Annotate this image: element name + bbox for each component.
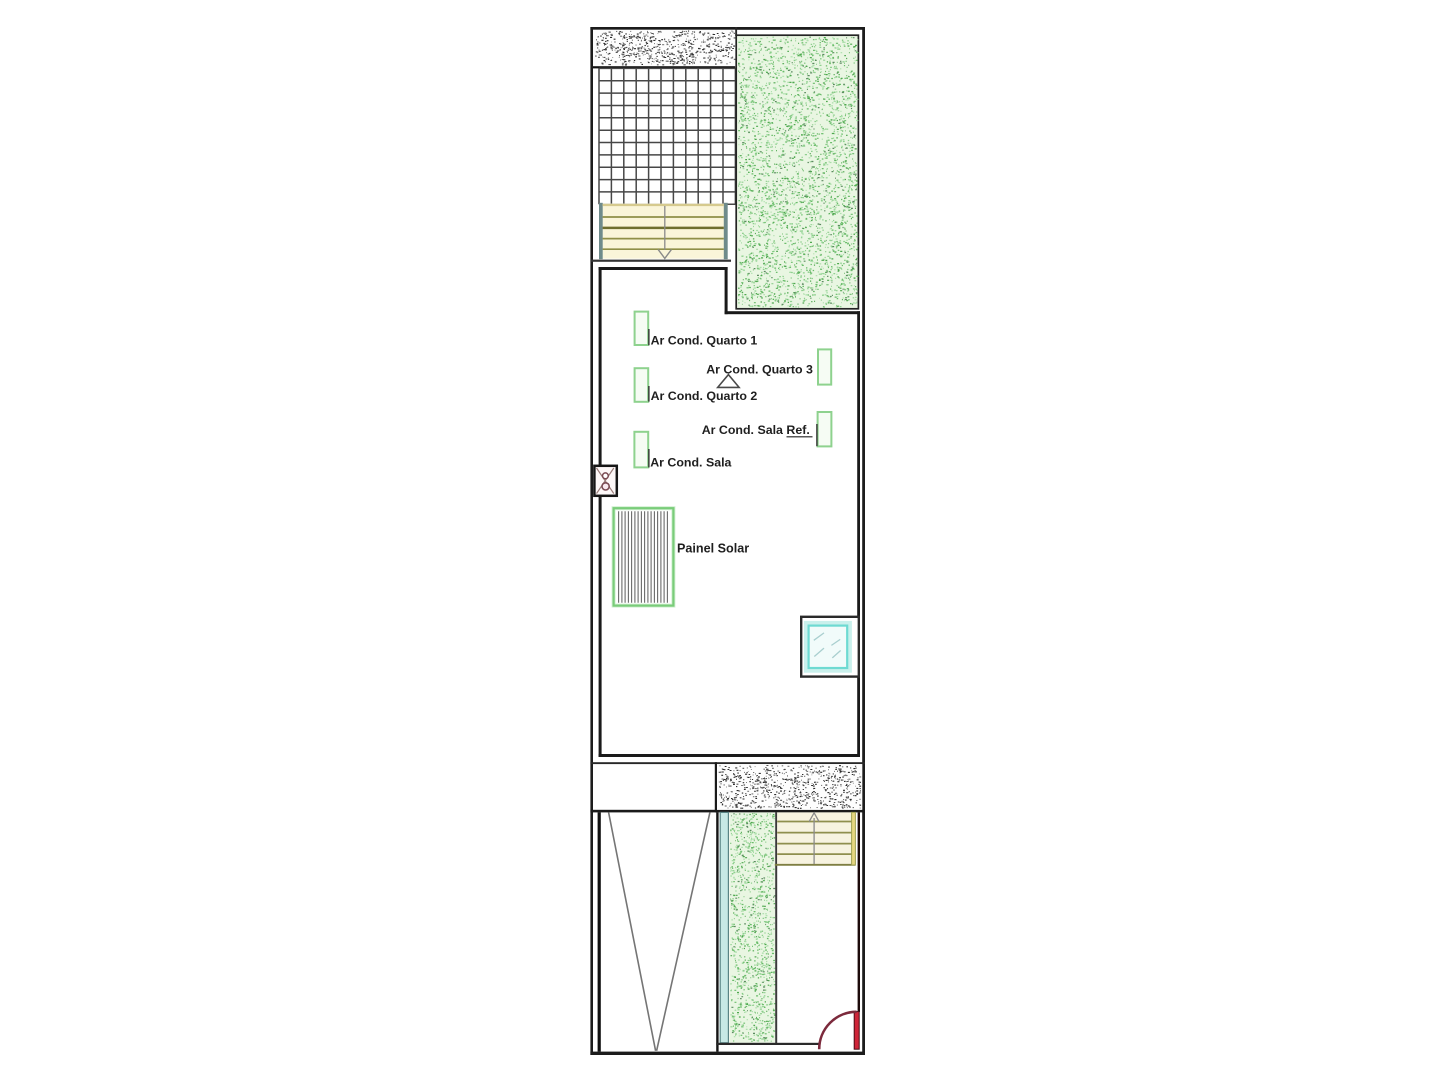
svg-text:Ar Cond. Quarto 3: Ar Cond. Quarto 3 [706,362,813,376]
svg-text:Ar Cond. Quarto 2: Ar Cond. Quarto 2 [651,389,758,403]
svg-text:Ar Cond. Sala Ref.: Ar Cond. Sala Ref. [702,423,810,437]
svg-text:Painel Solar: Painel Solar [677,542,749,556]
svg-text:Ar Cond. Quarto 1: Ar Cond. Quarto 1 [651,333,758,347]
svg-text:Ar Cond. Sala: Ar Cond. Sala [650,455,731,469]
